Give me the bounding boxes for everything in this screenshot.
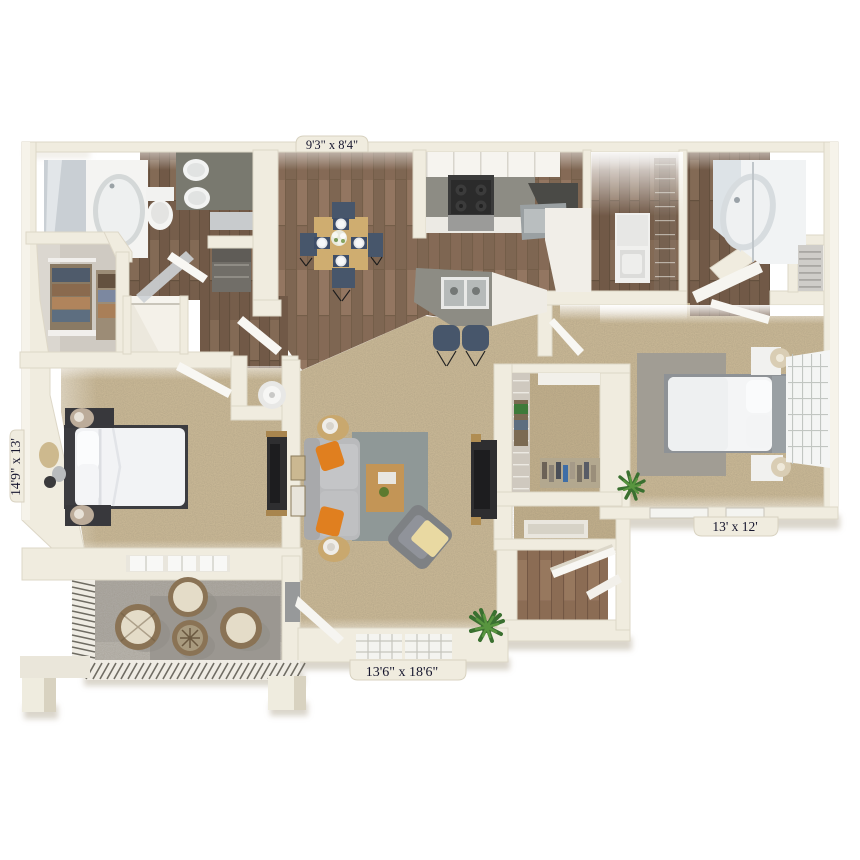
svg-text:13'6" x 18'6": 13'6" x 18'6" <box>366 665 438 680</box>
svg-text:9'3" x 8'4": 9'3" x 8'4" <box>306 138 358 152</box>
svg-text:14'9" x 13': 14'9" x 13' <box>8 438 23 496</box>
svg-text:13' x 12': 13' x 12' <box>712 519 757 534</box>
